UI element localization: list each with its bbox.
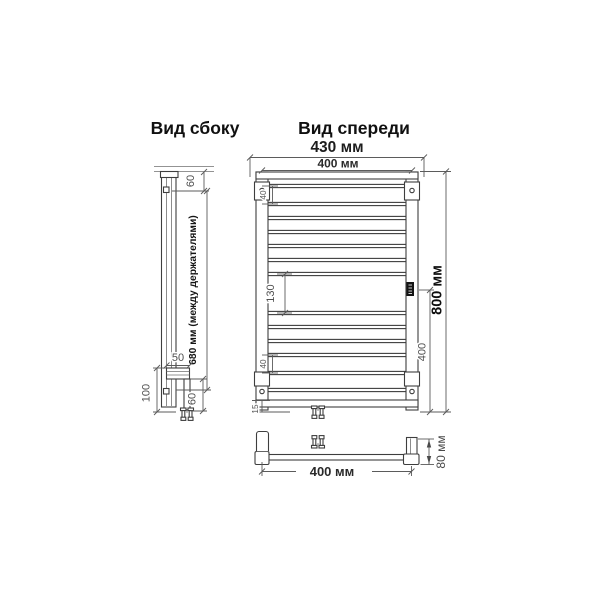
dim-label: 400 <box>417 343 429 361</box>
rungs-top-group <box>266 184 408 275</box>
bottom-view-drawing <box>255 432 419 465</box>
dim-center-gap: 130 <box>265 271 292 316</box>
front-drain-fitting <box>312 406 325 418</box>
dim-label: 60 <box>187 393 199 405</box>
screw-hole <box>260 389 264 393</box>
screw-hole <box>410 188 414 192</box>
front-view-title: Вид спереди <box>298 118 410 138</box>
dim-label: 40 <box>259 359 268 369</box>
bottom-view-left-bracket <box>255 432 269 465</box>
top-collector-tube <box>256 172 418 179</box>
dim-label: 400 мм <box>317 157 358 171</box>
top-holder <box>164 187 170 193</box>
bottom-view-right-bracket <box>404 438 420 465</box>
bottom-view-fitting <box>312 436 325 448</box>
front-view-drawing <box>255 172 420 418</box>
bottom-view-tube <box>269 455 407 461</box>
dim-label: 400 мм <box>310 464 355 479</box>
dim-label: 15 <box>251 404 260 414</box>
dim-label: 60 <box>185 175 197 187</box>
brand-badge <box>407 282 415 296</box>
dim-bottom-depth: 80 мм <box>418 435 448 468</box>
bottom-collector-tube <box>256 400 418 407</box>
bottom-holder <box>164 389 170 395</box>
towel-rail-technical-drawing: Вид сбоку Вид спереди 60 <box>0 0 600 600</box>
dim-label: 40 <box>259 190 268 200</box>
dim-overall-height: 800 мм <box>420 169 451 416</box>
dim-label: 680 мм (между держателями) <box>188 215 199 365</box>
dim-label: 50 <box>172 352 184 364</box>
dim-bottom-axis-width: 400 мм <box>259 462 415 479</box>
side-top-cap <box>161 172 179 178</box>
left-bottom-bracket <box>255 372 270 386</box>
screw-hole <box>410 389 414 393</box>
drawing-canvas: Вид сбоку Вид спереди 60 <box>0 0 600 600</box>
dim-label: 80 мм <box>434 435 448 468</box>
dim-label: 100 <box>141 384 153 402</box>
side-view-drawing <box>154 167 214 421</box>
dim-label: 130 <box>265 284 277 302</box>
dim-front-axis-width: 400 мм <box>259 157 415 174</box>
side-view-title: Вид сбоку <box>151 118 240 138</box>
right-bottom-bracket <box>405 372 420 386</box>
rungs-bottom-group <box>266 311 408 391</box>
dim-label: 430 мм <box>310 139 363 156</box>
